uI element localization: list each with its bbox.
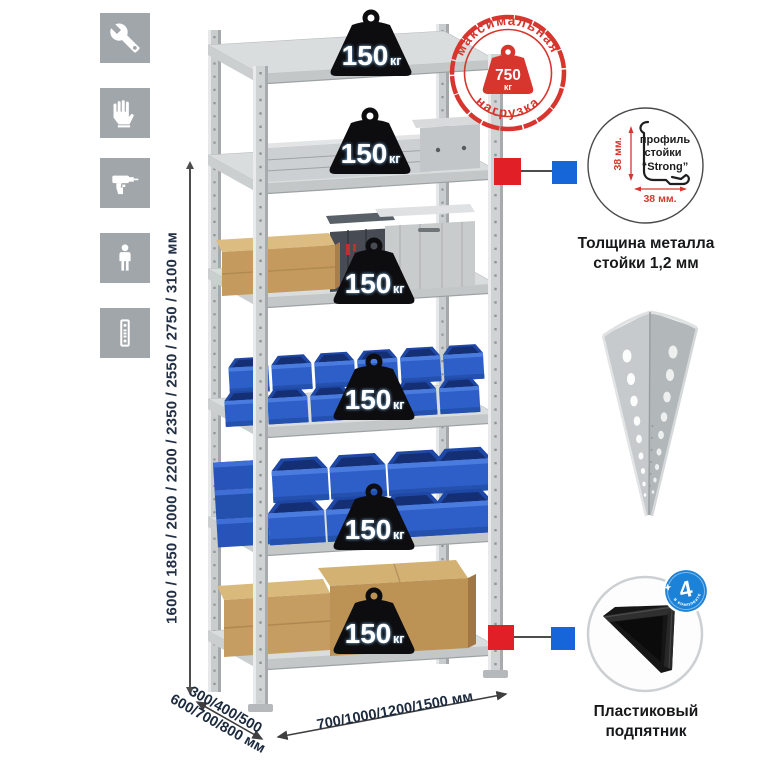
profile-dim-horizontal: 38 мм.	[643, 193, 676, 205]
callout-line-bottom	[514, 636, 551, 638]
svg-text:кг: кг	[393, 282, 404, 296]
callout-line-top	[521, 170, 552, 172]
icon-tile-rack-post	[100, 308, 150, 358]
svg-text:кг: кг	[393, 528, 404, 542]
foot-caption: Пластиковый подпятник	[570, 702, 722, 742]
included-count-badge: 4 в комплекте	[662, 567, 710, 615]
max-load-stamp: максимальная нагрузка 750 кг	[447, 12, 569, 134]
profile-label-3: “Strong”	[642, 161, 688, 173]
shelf-load-badge: 150 кг	[322, 106, 418, 178]
profile-caption: Толщина металла стойки 1,2 мм	[570, 234, 722, 274]
icon-tile-wrench	[100, 13, 150, 63]
rack-post-icon	[109, 317, 141, 349]
perforated-post-image	[595, 306, 705, 521]
profile-dim-vertical: 38 мм.	[612, 137, 624, 170]
profile-label-2: стойки	[644, 147, 681, 159]
shelf-load-badge: 150 кг	[326, 482, 422, 554]
profile-label-1: профиль	[640, 134, 690, 146]
gloves-icon	[109, 97, 141, 129]
svg-text:нагрузка: нагрузка	[473, 94, 543, 121]
svg-text:150: 150	[345, 268, 392, 299]
shelf-load-badge: 150 кг	[326, 236, 422, 308]
callout-marker-red-top	[494, 158, 521, 185]
svg-text:кг: кг	[390, 54, 401, 68]
shelf-load-badge: 150 кг	[326, 352, 422, 424]
icon-tile-gloves	[100, 88, 150, 138]
svg-text:150: 150	[342, 40, 389, 71]
height-dimension-label: 1600 / 1850 / 2000 / 2200 / 2350 / 2550 …	[164, 232, 181, 624]
svg-text:150: 150	[341, 138, 388, 169]
svg-text:кг: кг	[389, 152, 400, 166]
post-profile-detail: 38 мм. 38 мм. профиль стойки “Strong”	[586, 106, 705, 225]
icon-tile-person	[100, 233, 150, 283]
shelf-load-badge: 150 кг	[323, 8, 419, 80]
svg-text:150: 150	[345, 514, 392, 545]
stamp-text-bottom: нагрузка	[473, 94, 543, 121]
infographic-canvas: 1600 / 1850 / 2000 / 2200 / 2350 / 2550 …	[0, 0, 765, 765]
svg-text:кг: кг	[393, 398, 404, 412]
stamp-unit: кг	[504, 82, 513, 92]
icon-tile-drill	[100, 158, 150, 208]
svg-text:150: 150	[345, 384, 392, 415]
person-icon	[109, 242, 141, 274]
callout-marker-blue-top	[552, 161, 577, 184]
drill-icon	[109, 167, 141, 199]
wrench-icon	[109, 22, 141, 54]
